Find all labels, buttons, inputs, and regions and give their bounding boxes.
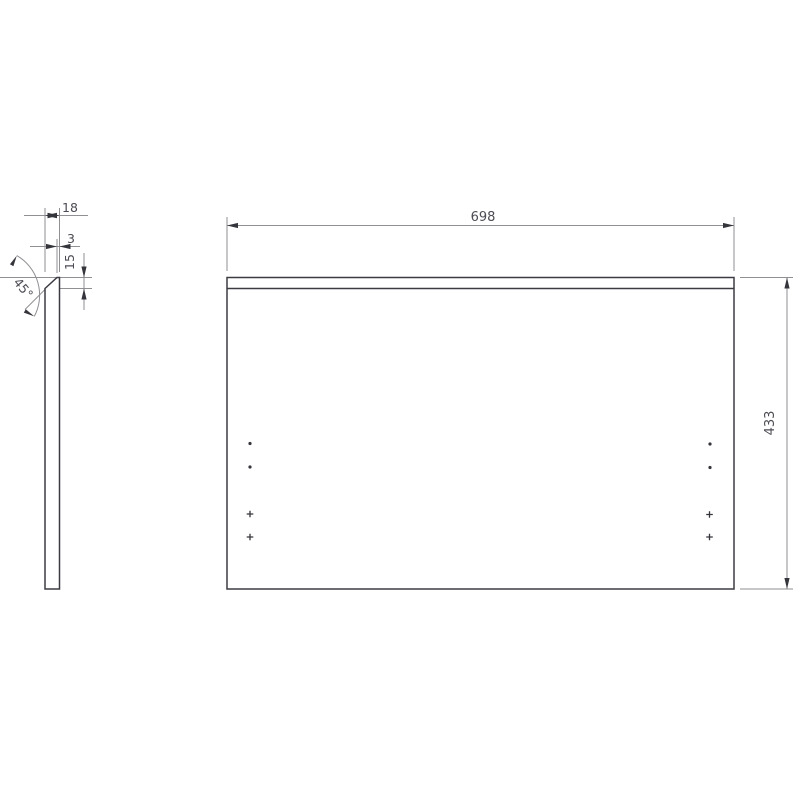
- drill-point-dot-mark: [708, 466, 711, 469]
- arrowhead: [227, 223, 238, 228]
- arrowhead: [46, 244, 57, 249]
- arrowhead: [81, 289, 86, 300]
- dimension-height: 433: [740, 278, 793, 590]
- dimension-chamfer-depth: 15: [62, 253, 87, 310]
- chamfer-angle-label: 45°: [11, 275, 37, 302]
- arrowhead: [81, 267, 86, 278]
- top-flat-dimension-label: 3: [67, 231, 75, 246]
- drill-point-dot-mark: [248, 442, 251, 445]
- dimension-chamfer-angle: 45°: [10, 256, 40, 317]
- arrowhead: [784, 278, 789, 289]
- side-profile-view: 18 3 15 45°: [0, 200, 92, 589]
- chamfer-depth-dimension-label: 15: [62, 254, 77, 270]
- arrowhead: [723, 223, 734, 228]
- thickness-dimension-label: 18: [62, 200, 78, 215]
- arrowhead: [784, 578, 789, 589]
- panel-outline: [227, 278, 734, 590]
- arrowhead: [24, 309, 35, 316]
- technical-drawing-canvas: 18 3 15 45°: [0, 0, 800, 800]
- dimension-thickness: 18: [24, 200, 88, 218]
- drill-point-dot-mark: [708, 442, 711, 445]
- technical-drawing-page: 18 3 15 45°: [0, 0, 800, 800]
- drill-point-dot-mark: [248, 465, 251, 468]
- arrowhead: [10, 256, 17, 267]
- side-profile-outline: [45, 278, 60, 590]
- height-dimension-label: 433: [763, 411, 778, 436]
- front-panel-view: 698 433: [227, 210, 793, 589]
- dimension-top-flat: 3: [30, 231, 80, 249]
- dimension-width: 698: [227, 210, 734, 271]
- width-dimension-label: 698: [471, 210, 496, 225]
